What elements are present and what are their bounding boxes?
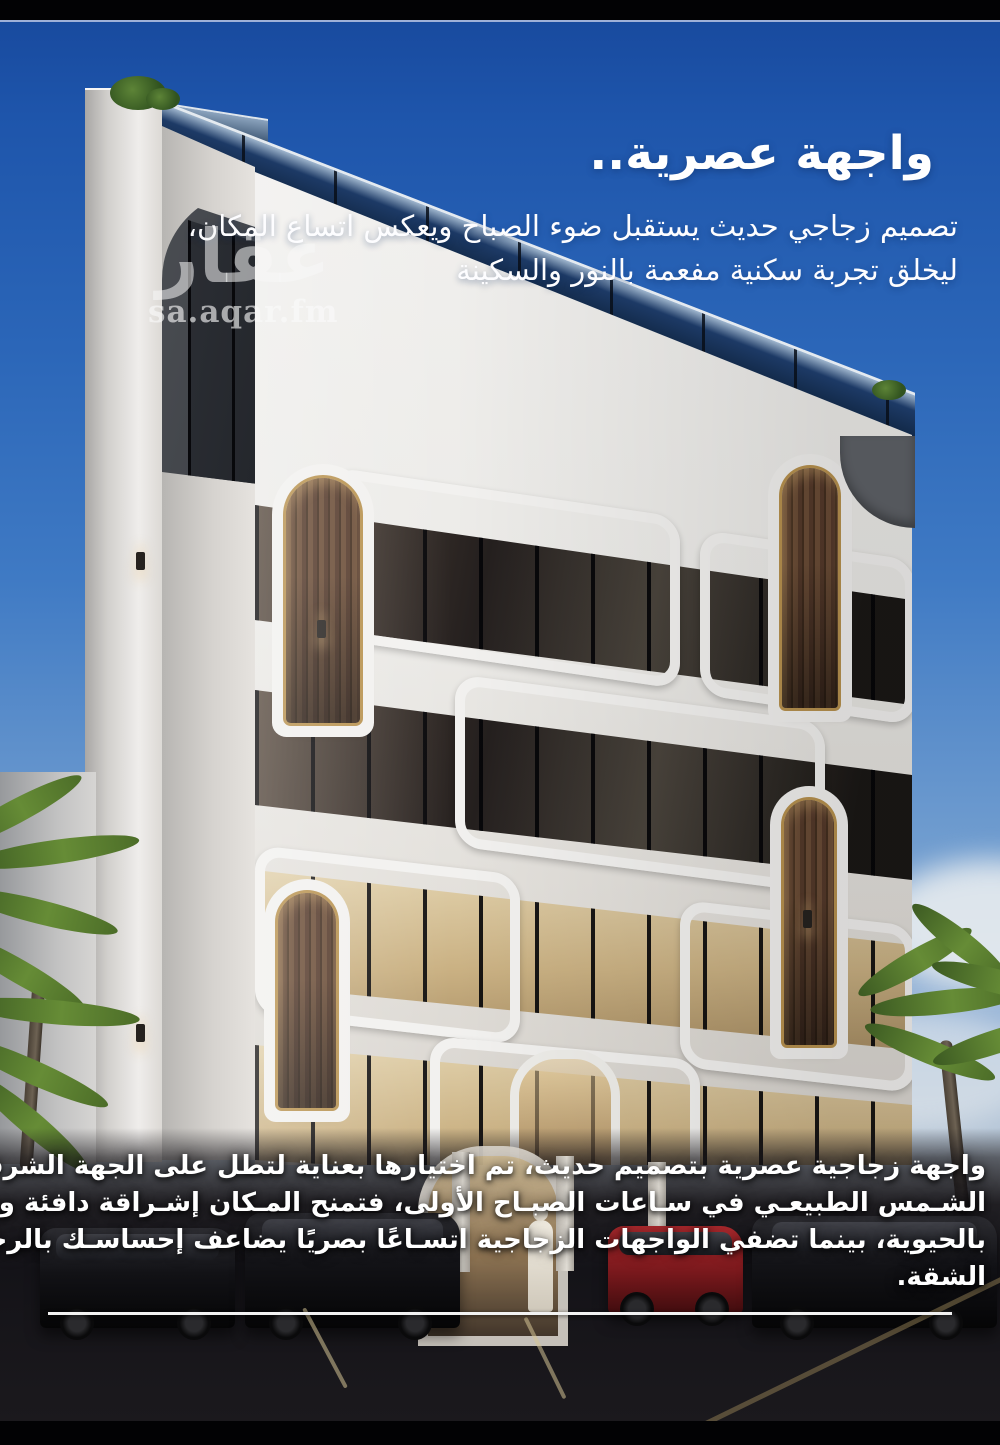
watermark: عقار sa.aqar.fm xyxy=(148,220,339,330)
top-letterbox-bar xyxy=(0,0,1000,22)
roof-shrub xyxy=(872,380,906,400)
description-block: واجهة زجاجية عصرية بتصميم حديث، تم اختيا… xyxy=(11,1148,986,1296)
divider-line xyxy=(48,1312,952,1315)
promo-image: واجهة عصرية.. تصميم زجاجي حديث يستقبل ضو… xyxy=(0,0,1000,1445)
headline: واجهة عصرية.. xyxy=(589,126,934,181)
description-line: الشقة. xyxy=(11,1259,986,1296)
bottom-letterbox-bar xyxy=(0,1421,1000,1445)
roof-shrub xyxy=(146,88,180,110)
description-line: الشـمس الطبيعـي في سـاعات الصبـاح الأولى… xyxy=(11,1185,986,1222)
watermark-url: sa.aqar.fm xyxy=(148,294,339,330)
watermark-logo: عقار xyxy=(148,220,339,294)
description-line: بالحيوية، بينما تضفي الواجهات الزجاجية ا… xyxy=(11,1222,986,1259)
wall-sconce xyxy=(136,552,145,570)
description-line: واجهة زجاجية عصرية بتصميم حديث، تم اختيا… xyxy=(11,1148,986,1185)
wall-sconce xyxy=(136,1024,145,1042)
